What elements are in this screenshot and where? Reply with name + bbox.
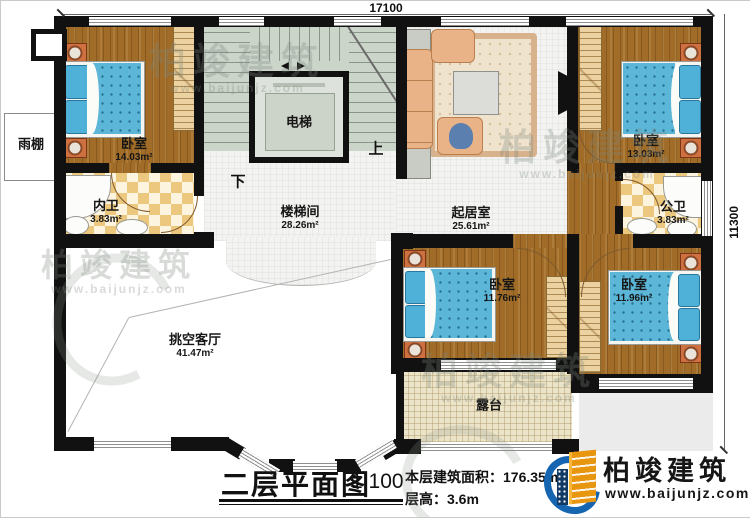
bed-tl-pillow-2 (65, 100, 89, 134)
wall-bm-br-divider (567, 241, 579, 374)
room-label-living: 起居室 25.61m² (451, 206, 490, 232)
stair-down-label: 下 (230, 171, 245, 192)
living-armchair-top (431, 29, 475, 63)
stair-arrow-left (281, 62, 289, 70)
bed-br-pillow-2 (678, 308, 700, 341)
window-bottom-left (94, 439, 171, 449)
bed-bm-pillow-1 (405, 271, 427, 304)
bed-tr-pillow-2 (679, 100, 701, 134)
logo-building-orange-icon (569, 450, 596, 505)
dimension-top-value: 17100 (341, 1, 431, 15)
floor-area-row: 本层建筑面积：176.35m² (405, 467, 563, 487)
floor-height-row: 层高：3.6m (405, 489, 479, 509)
title-underline-2 (219, 504, 403, 505)
stairs-left-flight (204, 23, 250, 153)
terrace-railing (421, 442, 552, 452)
room-label-void-living: 挑空客厅 41.47m² (169, 333, 221, 359)
nightstand-br-bottom (680, 344, 702, 363)
window-top-5 (566, 17, 693, 26)
nightstand-tr-bottom (680, 138, 702, 158)
toilet-bath-inner (63, 216, 89, 235)
wardrobe-bedroom-tr (579, 26, 602, 131)
void-slab-line-1 (68, 317, 130, 431)
window-top-3 (334, 17, 381, 26)
dimension-right-line (724, 14, 725, 451)
room-label-bedroom-bm: 卧室 11.76m² (484, 278, 521, 304)
living-person-figure (449, 123, 473, 149)
wall-terrace-left (396, 372, 404, 442)
floor-height-value: 3.6m (447, 491, 479, 507)
brand-logo: 柏竣建筑 www.baijunjz.com (541, 443, 746, 513)
nightstand-bm-top (404, 250, 426, 268)
brand-logo-icon (545, 447, 601, 509)
door-gap-bedroom-bm (513, 234, 567, 248)
room-label-stairwell: 楼梯间 28.26m² (280, 205, 319, 231)
window-right-bath (702, 181, 712, 236)
door-gap-bedroom-br (579, 234, 633, 248)
nightstand-tr-top (680, 43, 702, 63)
room-label-canopy: 雨棚 (18, 138, 44, 153)
window-top-2 (219, 17, 264, 26)
plan-title: 二层平面图 (221, 463, 371, 503)
floor-plan-canvas: 卧室 14.03m² 内卫 3.83m² 电梯 楼梯间 28.26m² 起居室 … (0, 0, 750, 518)
nightstand-bm-bottom (404, 341, 426, 359)
wall-bedroom-bm-left (391, 234, 403, 374)
room-label-elevator: 电梯 (286, 116, 312, 131)
bed-bm-pillow-2 (405, 305, 427, 338)
logo-building-navy-icon (557, 469, 568, 505)
floor-area-label: 本层建筑面积： (405, 469, 503, 485)
stair-up-label: 上 (368, 138, 383, 159)
title-underline-1 (219, 499, 403, 502)
room-label-bath-inner: 内卫 3.83m² (90, 199, 122, 225)
bed-br-pillow-1 (678, 274, 700, 307)
door-gap-bath-inner (109, 163, 151, 173)
plan-scale: 1:100 (351, 470, 404, 494)
nightstand-tl-bottom (63, 138, 87, 158)
elevator-door-line (273, 83, 325, 87)
brand-name: 柏竣建筑 (603, 449, 731, 488)
bed-bm-mattress (427, 269, 492, 338)
wall-stair-living (396, 16, 407, 179)
room-label-terrace: 露台 (476, 399, 502, 414)
wall-bottom-left-a (54, 437, 94, 451)
wall-bath-public-left-stub (615, 173, 623, 181)
floor-height-label: 层高： (405, 491, 447, 507)
chimney-block (31, 29, 67, 61)
window-bedroom-bm-south (441, 360, 556, 370)
living-coffee-table (453, 71, 499, 115)
wardrobe-bedroom-tl (173, 26, 196, 131)
room-label-bedroom-tl: 卧室 14.03m² (115, 137, 152, 163)
room-label-bedroom-br: 卧室 11.96m² (616, 278, 653, 304)
wall-bottom-left-b (171, 437, 229, 451)
wall-living-bedroom-tr (567, 16, 578, 171)
living-tv (558, 71, 568, 115)
sink-bath-public (627, 218, 657, 235)
window-top-4 (441, 17, 529, 26)
room-label-bath-public: 公卫 3.83m² (657, 200, 689, 226)
wall-bath-inner-bottom (54, 234, 214, 248)
door-gap-bedroom-tr (579, 163, 615, 173)
room-label-bedroom-tr: 卧室 13.03m² (627, 134, 664, 160)
bed-tr-pillow-1 (679, 65, 701, 99)
brand-url: www.baijunjz.com (605, 485, 750, 501)
wall-left-lower (54, 238, 66, 451)
bed-tl-pillow-1 (65, 65, 89, 99)
dimension-right-value: 11300 (727, 206, 741, 239)
bed-tr-mattress (623, 63, 675, 134)
window-top-1 (89, 17, 171, 26)
stair-arrow-right (297, 62, 305, 70)
window-bedroom-br-south (599, 378, 693, 389)
wall-bedroom-tl-right (194, 16, 204, 196)
